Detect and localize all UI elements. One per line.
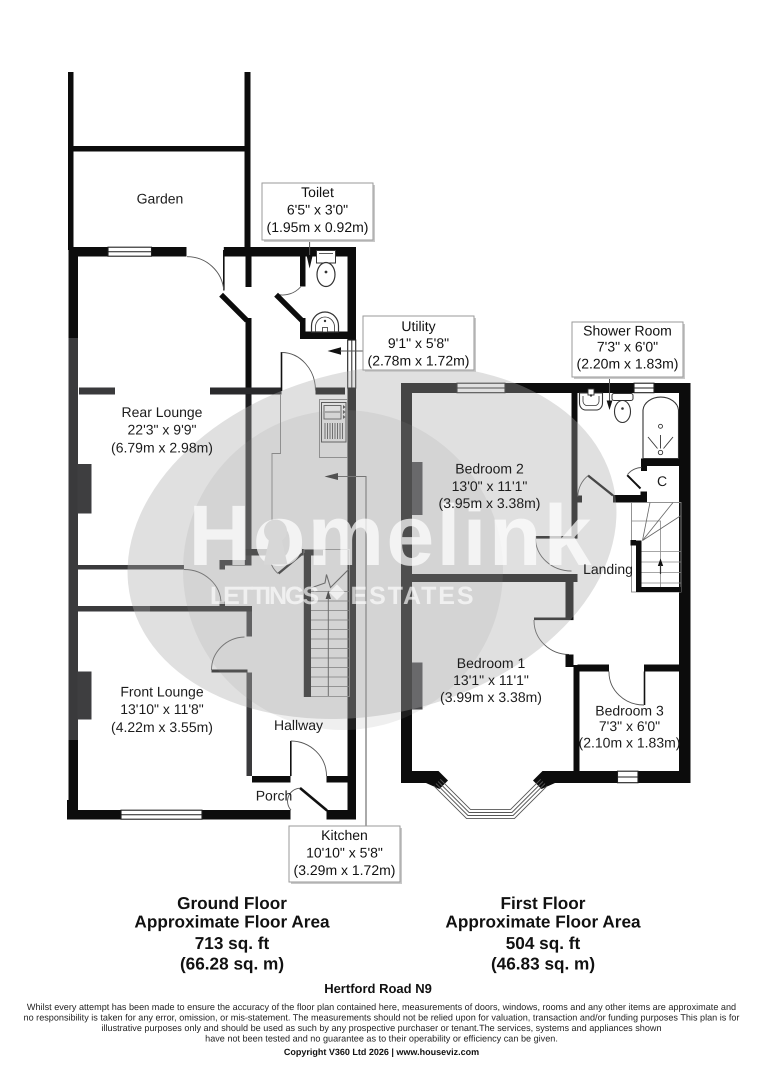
svg-text:Front Lounge: Front Lounge	[120, 684, 203, 700]
svg-text:Bedroom 2: Bedroom 2	[455, 461, 524, 477]
svg-text:13'10" x 11'8": 13'10" x 11'8"	[120, 701, 204, 717]
svg-text:no responsibility is taken for: no responsibility is taken for any error…	[24, 1013, 740, 1023]
svg-text:Garden: Garden	[137, 191, 184, 207]
svg-text:(3.99m x 3.38m): (3.99m x 3.38m)	[440, 689, 542, 705]
svg-text:C: C	[657, 473, 667, 489]
svg-text:Utility: Utility	[401, 318, 435, 334]
svg-text:(3.95m x 3.38m): (3.95m x 3.38m)	[439, 495, 541, 511]
svg-text:Hertford Road N9: Hertford Road N9	[324, 981, 432, 996]
svg-text:ESTATES: ESTATES	[351, 582, 478, 610]
svg-text:504 sq. ft: 504 sq. ft	[506, 933, 581, 953]
svg-text:(6.79m x 2.98m): (6.79m x 2.98m)	[111, 440, 213, 456]
svg-text:Ground Floor: Ground Floor	[177, 893, 287, 913]
svg-text:Hallway: Hallway	[274, 717, 323, 733]
svg-text:(2.20m x 1.83m): (2.20m x 1.83m)	[577, 356, 679, 372]
svg-text:Approximate Floor Area: Approximate Floor Area	[134, 912, 330, 932]
svg-text:13'1" x 11'1": 13'1" x 11'1"	[453, 672, 529, 688]
svg-text:9'1" x 5'8": 9'1" x 5'8"	[388, 335, 449, 351]
svg-text:Rear Lounge: Rear Lounge	[122, 404, 203, 420]
svg-text:First Floor: First Floor	[501, 893, 586, 913]
svg-text:Toilet: Toilet	[301, 184, 334, 200]
svg-text:13'0" x 11'1": 13'0" x 11'1"	[452, 478, 528, 494]
svg-text:Landing: Landing	[583, 561, 633, 577]
svg-text:7'3" x 6'0": 7'3" x 6'0"	[599, 718, 660, 734]
svg-text:(3.29m x 1.72m): (3.29m x 1.72m)	[294, 862, 396, 878]
svg-text:Bedroom 1: Bedroom 1	[457, 655, 526, 671]
svg-text:(66.28 sq. m): (66.28 sq. m)	[180, 954, 284, 974]
svg-text:Bedroom 3: Bedroom 3	[595, 703, 664, 719]
svg-text:22'3" x 9'9": 22'3" x 9'9"	[128, 422, 197, 438]
svg-text:(1.95m x 0.92m): (1.95m x 0.92m)	[267, 219, 369, 235]
svg-text:7'3" x 6'0": 7'3" x 6'0"	[597, 339, 658, 355]
svg-text:Copyright V360 Ltd 2026 | www.: Copyright V360 Ltd 2026 | www.houseviz.c…	[284, 1047, 479, 1057]
svg-text:(4.22m x 3.55m): (4.22m x 3.55m)	[111, 719, 213, 735]
svg-text:Approximate Floor Area: Approximate Floor Area	[445, 912, 641, 932]
svg-text:Porch: Porch	[256, 788, 293, 804]
svg-text:(2.10m x 1.83m): (2.10m x 1.83m)	[579, 735, 681, 751]
svg-text:Shower Room: Shower Room	[583, 323, 672, 339]
svg-text:LETTINGS: LETTINGS	[210, 582, 323, 610]
svg-text:Whilst every attempt has been: Whilst every attempt has been made to en…	[27, 1002, 736, 1012]
svg-text:(46.83 sq. m): (46.83 sq. m)	[491, 954, 595, 974]
svg-text:(2.78m x 1.72m): (2.78m x 1.72m)	[368, 353, 470, 369]
svg-text:have not been tested and no gu: have not been tested and no guarantee as…	[205, 1034, 558, 1044]
svg-text:10'10" x 5'8": 10'10" x 5'8"	[306, 845, 383, 861]
svg-text:6'5" x 3'0": 6'5" x 3'0"	[287, 202, 348, 218]
svg-text:713 sq. ft: 713 sq. ft	[195, 933, 270, 953]
svg-text:Kitchen: Kitchen	[321, 827, 368, 843]
svg-text:illustrative purposes only and: illustrative purposes only and should be…	[101, 1023, 661, 1033]
